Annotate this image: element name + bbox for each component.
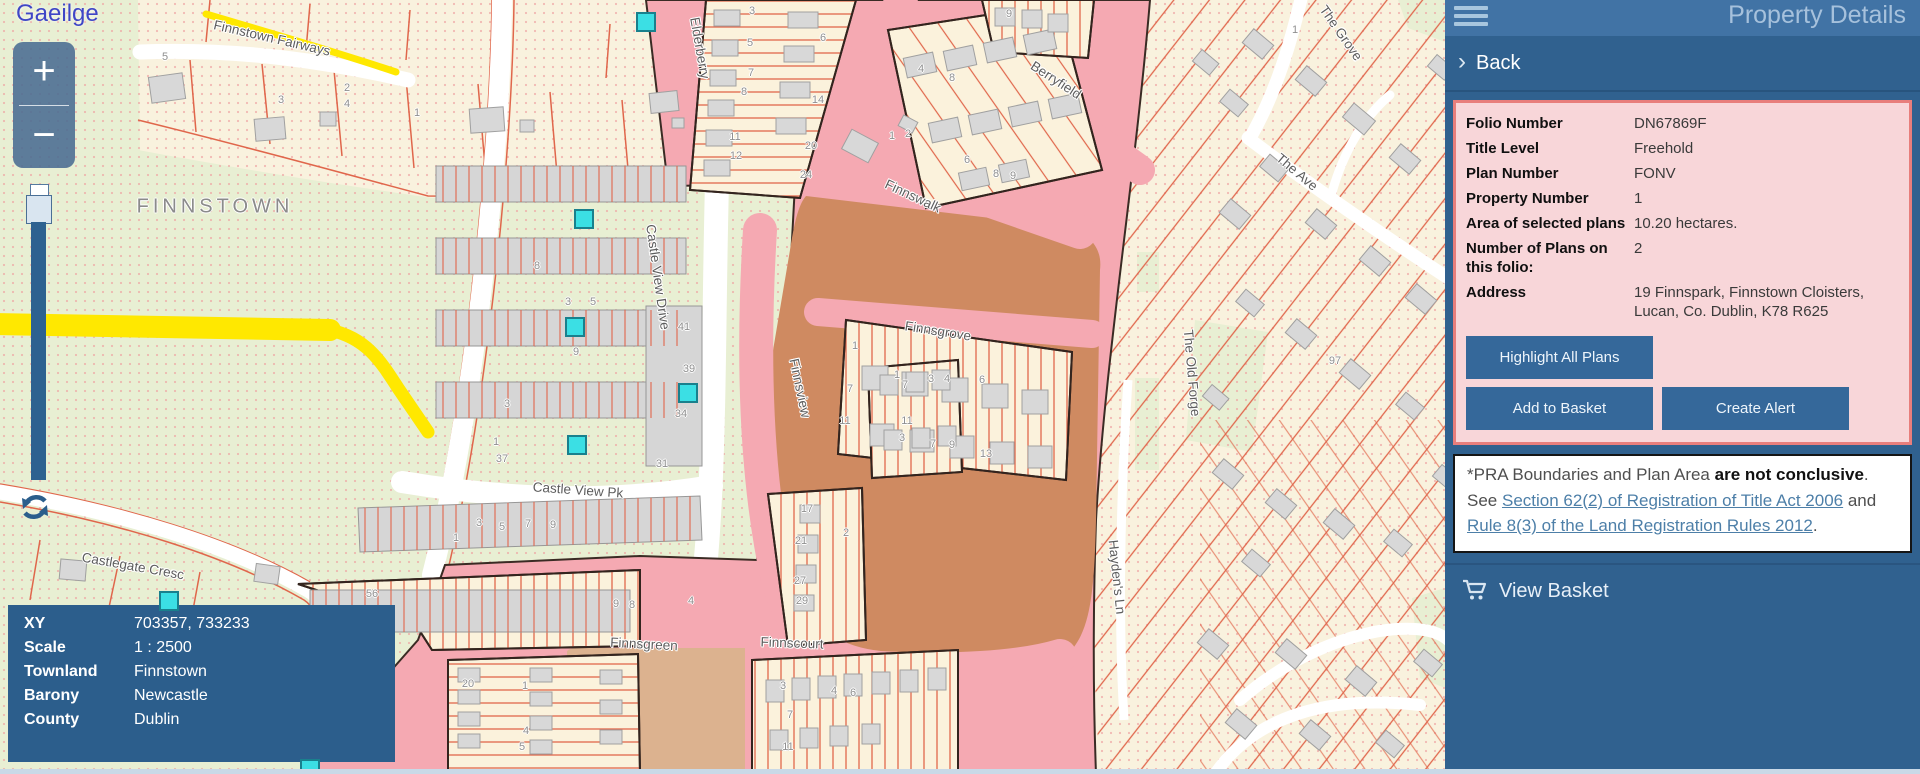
back-label: Back [1476, 52, 1520, 75]
view-basket-button[interactable]: View Basket [1445, 563, 1920, 619]
back-button[interactable]: › Back [1445, 36, 1920, 92]
zoom-out-button[interactable]: − [13, 106, 75, 169]
basket-icon [1462, 578, 1487, 606]
disclaimer-text: *PRA Boundaries and Plan Area [1467, 465, 1715, 484]
zoom-in-button[interactable]: + [13, 42, 75, 105]
chevron-right-icon: › [1458, 48, 1466, 76]
rule-8-link[interactable]: Rule 8(3) of the Land Registration Rules… [1467, 516, 1813, 535]
panel-body: Folio NumberDN67869FTitle LevelFreeholdP… [1445, 92, 1920, 774]
highlight-all-plans-button[interactable]: Highlight All Plans [1466, 336, 1653, 379]
info-row: CountyDublin [8, 708, 395, 732]
bottom-edge-strip [0, 769, 1920, 774]
details-row: Address19 Finnspark, Finnstown Cloisters… [1466, 280, 1899, 324]
details-row: Folio NumberDN67869F [1466, 111, 1899, 136]
info-row: XY703357, 733233 [8, 612, 395, 636]
map-info-panel: XY703357, 733233Scale1 : 2500TownlandFin… [8, 605, 395, 762]
plan-marker[interactable] [565, 317, 585, 337]
menu-icon[interactable] [1454, 6, 1488, 30]
details-row: Number of Plans on this folio:2 [1466, 236, 1899, 280]
folio-details-card: Folio NumberDN67869FTitle LevelFreeholdP… [1453, 100, 1912, 445]
info-row: Scale1 : 2500 [8, 636, 395, 660]
panel-header: Property Details [1445, 0, 1920, 36]
panel-title: Property Details [1728, 1, 1906, 30]
zoom-slider-track[interactable] [31, 222, 46, 480]
zoom-control: + − [13, 42, 75, 168]
landdirect-map-app: Finnstown FairwaysElderberryBerryfieldFi… [0, 0, 1920, 774]
zoom-slider[interactable] [26, 184, 52, 484]
details-row: Area of selected plans10.20 hectares. [1466, 211, 1899, 236]
section-62-link[interactable]: Section 62(2) of Registration of Title A… [1502, 491, 1843, 510]
plan-marker[interactable] [574, 209, 594, 229]
details-row: Plan NumberFONV [1466, 161, 1899, 186]
plan-marker[interactable] [636, 12, 656, 32]
map-viewport[interactable]: Finnstown FairwaysElderberryBerryfieldFi… [0, 0, 1445, 774]
refresh-map-button[interactable] [19, 490, 51, 524]
plan-marker[interactable] [567, 435, 587, 455]
plan-marker[interactable] [159, 591, 179, 611]
info-row: BaronyNewcastle [8, 684, 395, 708]
details-row: Title LevelFreehold [1466, 136, 1899, 161]
language-toggle-link[interactable]: Gaeilge [16, 0, 99, 28]
boundaries-disclaimer: *PRA Boundaries and Plan Area are not co… [1453, 454, 1912, 553]
view-basket-label: View Basket [1499, 580, 1609, 603]
plan-marker[interactable] [678, 383, 698, 403]
details-row: Property Number1 [1466, 186, 1899, 211]
disclaimer-bold: are not conclusive [1715, 465, 1864, 484]
info-row: TownlandFinnstown [8, 660, 395, 684]
add-to-basket-button[interactable]: Add to Basket [1466, 387, 1653, 430]
create-alert-button[interactable]: Create Alert [1662, 387, 1849, 430]
property-details-panel: Property Details › Back Folio NumberDN67… [1445, 0, 1920, 774]
zoom-slider-thumb[interactable] [26, 195, 52, 224]
